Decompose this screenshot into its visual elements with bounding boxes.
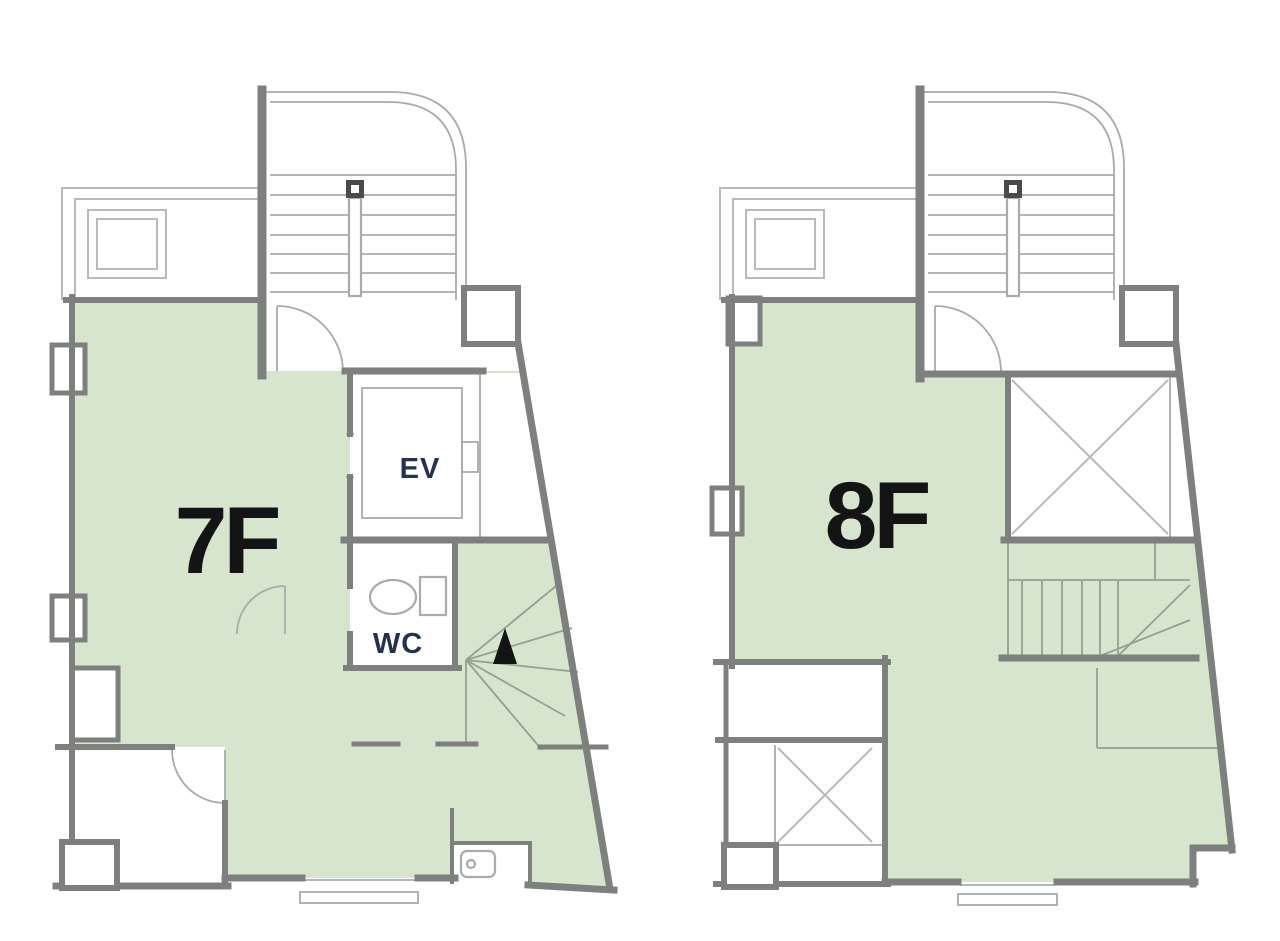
floor-label-8f: 8F [825,463,929,569]
entrance-8f [958,885,1057,905]
handrail-post-center-8f [1009,185,1017,193]
toilet-tank-icon [420,577,446,615]
corner-column-8f [1122,288,1176,344]
balcony-8f [720,188,920,300]
corner-column-7f [464,288,518,344]
leased-area-7f [72,300,610,888]
void-rooms-8f [775,745,885,845]
elevator-hall-7f [350,373,551,538]
handrail-post-center [351,185,359,193]
pillar-notch-7f-b [52,596,85,640]
washbasin-7f [461,851,495,877]
floor-label-7f: 7F [175,488,279,594]
elevator-label-7f: EV [400,453,441,485]
landing-door-8f [935,306,1001,372]
balcony-door-7f [172,750,225,803]
balcony-7f [62,188,262,300]
floor-plan-figure: EV WC [0,0,1280,941]
floor-plan-page: EV WC [0,0,1280,941]
wc-label-7f: WC [373,628,423,660]
bottom-left-column-7f [62,842,117,888]
bottom-left-column-8f [724,845,776,887]
exterior-staircase-8f [920,92,1124,372]
alcove-7f [72,668,118,740]
entrance-7f [300,880,418,903]
floor-plan-7f: EV WC [52,90,614,903]
landing-door-7f [277,306,343,372]
pillar-notch-8f [712,488,742,534]
stair-handrail-8f [1007,198,1019,296]
exterior-staircase-7f [262,92,466,372]
pillar-notch-7f-a [52,345,85,393]
floor-plan-8f: 8F [712,90,1232,905]
elevator-shaft-8f [1008,376,1196,538]
toilet-icon [370,580,416,614]
stair-handrail-7f [349,198,361,296]
